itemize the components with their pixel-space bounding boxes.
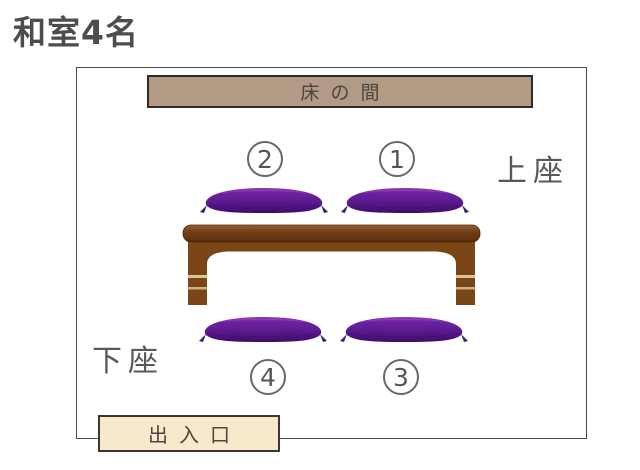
kamiza-label: 上座 bbox=[497, 146, 569, 190]
seat-1-label: 1 bbox=[389, 147, 405, 172]
zabuton-cushion-seat-2 bbox=[200, 185, 328, 215]
entrance-exit-label: 出入口 bbox=[137, 419, 241, 448]
zabuton-cushion-seat-3 bbox=[340, 314, 468, 344]
seat-number-4: 4 bbox=[250, 359, 286, 395]
seat-number-3: 3 bbox=[383, 359, 419, 395]
low-table-illustration bbox=[181, 223, 482, 307]
shimoza-label: 下座 bbox=[92, 336, 164, 380]
page-title: 和室4名 bbox=[13, 6, 139, 54]
seat-number-2: 2 bbox=[247, 141, 283, 177]
seat-4-label: 4 bbox=[260, 365, 276, 390]
zabuton-cushion-seat-4 bbox=[199, 314, 327, 344]
zabuton-cushion-seat-1 bbox=[341, 185, 469, 215]
seating-chart: 和室4名 床の間 2 1 4 3 上座 下座 出入口 bbox=[0, 0, 640, 470]
tokonoma-label: 床の間 bbox=[289, 78, 390, 105]
entrance-exit: 出入口 bbox=[98, 415, 280, 452]
seat-number-1: 1 bbox=[379, 141, 415, 177]
seat-3-label: 3 bbox=[393, 365, 409, 390]
tokonoma-alcove: 床の間 bbox=[147, 75, 533, 108]
seat-2-label: 2 bbox=[257, 147, 273, 172]
